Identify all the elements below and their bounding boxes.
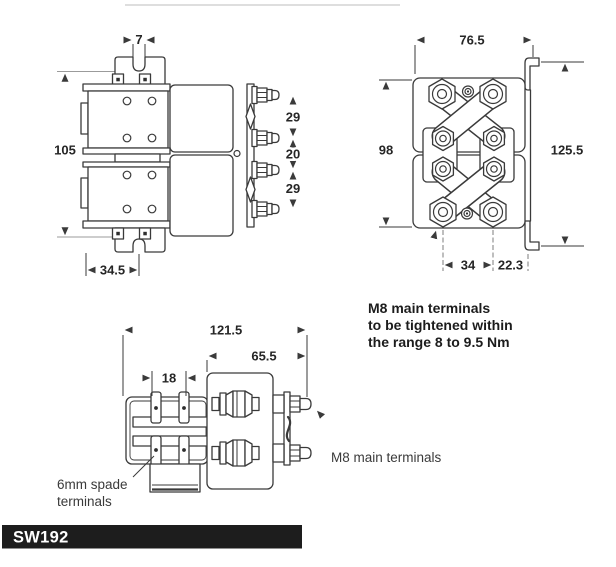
- top-view: 121.5 65.5 18 6mm spade terminals M8 mai…: [57, 323, 442, 510]
- dim-label-18: 18: [162, 371, 176, 386]
- front-bolt-mid-right-upper: [484, 127, 505, 151]
- dim-label-22-3: 22.3: [498, 258, 523, 273]
- top-m8-terminals: [273, 392, 311, 465]
- front-bolt-top-right: [480, 79, 506, 109]
- side-terminal-stud: [252, 162, 279, 179]
- m8-label: M8 main terminals: [331, 450, 442, 465]
- front-mounting-bracket: [525, 58, 539, 250]
- dim-overall-width: 76.5: [415, 33, 533, 75]
- front-view: 76.5 98 125.5 34 22.3: [368, 33, 584, 351]
- side-terminal-stud: [252, 201, 279, 218]
- spade-label-line2: terminals: [57, 494, 112, 509]
- torque-note-line2: to be tightened within: [368, 317, 513, 333]
- side-view: 7 105 29 20 29: [54, 32, 302, 278]
- top-m8-terminal-lower: [273, 444, 311, 462]
- torque-note: M8 main terminals to be tightened within…: [368, 231, 513, 350]
- dim-label-105: 105: [54, 143, 76, 158]
- torque-note-line1: M8 main terminals: [368, 300, 490, 316]
- dim-bracket-height: 125.5: [541, 62, 584, 246]
- dim-label-7: 7: [135, 32, 142, 47]
- dim-label-34-5: 34.5: [100, 263, 125, 278]
- dim-label-20: 20: [286, 147, 300, 162]
- dim-label-65-5: 65.5: [251, 349, 276, 364]
- model-number: SW192: [13, 529, 69, 547]
- torque-note-line3: the range 8 to 9.5 Nm: [368, 334, 510, 350]
- technical-drawing: 7 105 29 20 29: [0, 0, 616, 567]
- side-terminal-stud: [252, 130, 279, 147]
- model-banner: SW192: [2, 525, 302, 549]
- dim-body-height: 98: [379, 80, 412, 227]
- side-bottom-bracket: [113, 228, 166, 252]
- front-bolt-bottom-left: [430, 197, 456, 227]
- front-bolt-bottom-right: [480, 197, 506, 227]
- dim-label-98: 98: [379, 143, 393, 158]
- datasheet-page: 7 105 29 20 29: [0, 0, 616, 567]
- dim-label-29-lower: 29: [286, 181, 300, 196]
- top-coil-foot: [150, 464, 200, 492]
- m8-terminals-label: M8 main terminals: [317, 411, 442, 465]
- dim-body-depth: 65.5: [207, 349, 305, 373]
- dim-label-125-5: 125.5: [551, 143, 584, 158]
- side-terminal-stud: [252, 87, 279, 104]
- dim-label-34: 34: [461, 258, 476, 273]
- side-contact-housing: [170, 84, 279, 236]
- front-screw-top: [463, 86, 474, 97]
- dim-label-29-upper: 29: [286, 110, 300, 125]
- top-m8-terminal-upper: [273, 395, 311, 413]
- front-bolt-top-left: [429, 79, 455, 109]
- side-top-bracket: [113, 57, 166, 85]
- dim-spade-pitch: 18: [134, 371, 204, 397]
- top-spade-plate: [126, 392, 209, 467]
- front-bolt-mid-right-lower: [484, 157, 505, 181]
- front-bolt-mid-left-upper: [433, 127, 454, 151]
- front-bolt-mid-left-lower: [433, 157, 454, 181]
- spade-label-line1: 6mm spade: [57, 477, 128, 492]
- front-screw-bottom: [462, 208, 473, 219]
- dim-label-121-5: 121.5: [210, 323, 243, 338]
- dim-terminal-spacing: 34 22.3: [443, 230, 528, 273]
- side-coil-body: [81, 84, 170, 228]
- dim-overall-height: 105: [54, 74, 76, 235]
- dim-terminal-pitches: 29 20 29: [283, 95, 302, 209]
- dim-label-76-5: 76.5: [459, 33, 484, 48]
- dim-bracket-offset-side: 34.5: [86, 253, 139, 278]
